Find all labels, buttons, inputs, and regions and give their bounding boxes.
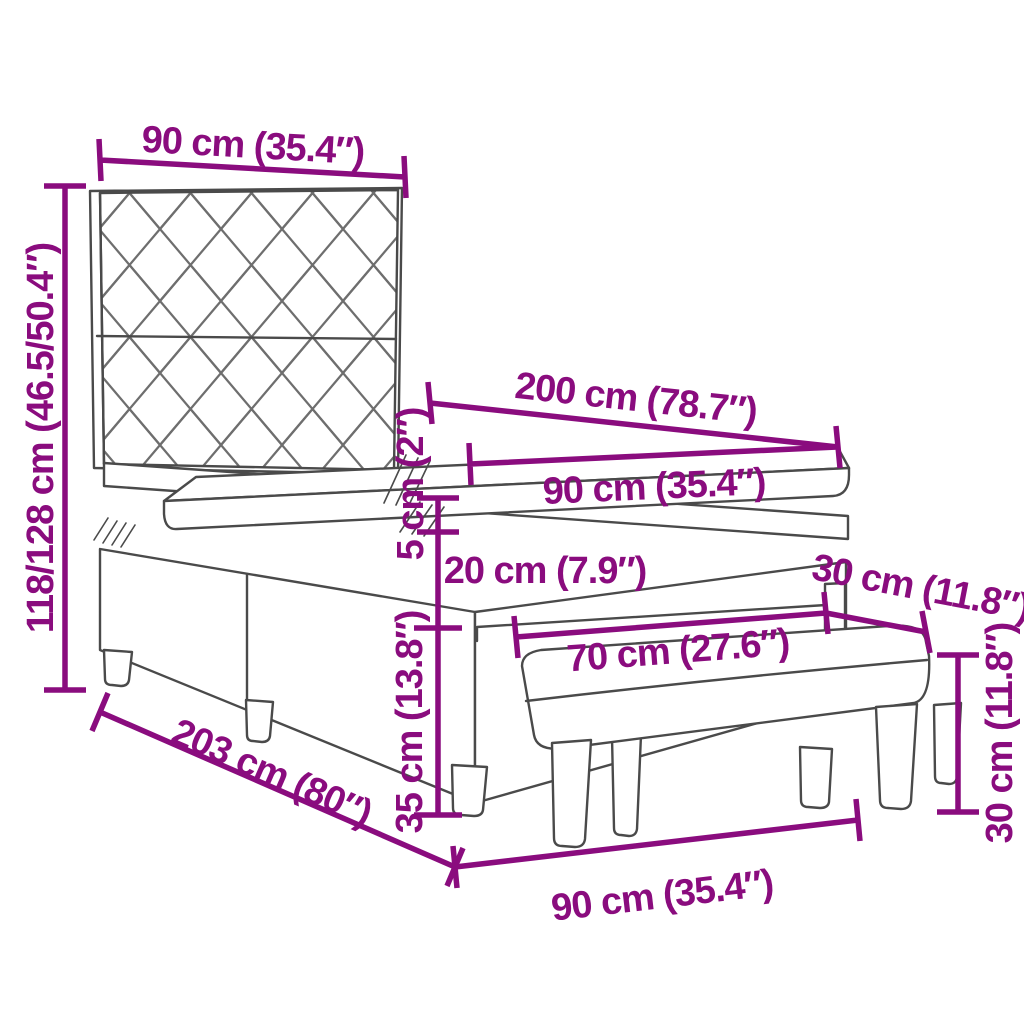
bed-leg-front-right <box>452 765 487 816</box>
headboard-pattern <box>100 190 398 470</box>
bench-leg-front-left <box>552 740 591 847</box>
dim-mattress-height-label: 5 cm (2″) <box>390 408 432 561</box>
dim-base-height-label: 35 cm (13.8″) <box>389 611 431 834</box>
bed-leg-foot <box>800 747 832 808</box>
bench-leg-front-right <box>876 704 917 809</box>
dim-box-spring-height-label: 20 cm (7.9″) <box>444 550 647 592</box>
bed-leg-front-left <box>104 650 132 686</box>
bed-dimension-diagram: 90 cm (35.4″) 118/128 cm (46.5/50.4″) 20… <box>0 0 1024 1024</box>
bed-leg-middle <box>246 700 273 742</box>
dim-bench-height-label: 30 cm (11.8″) <box>979 623 1021 844</box>
dim-overall-height-label: 118/128 cm (46.5/50.4″) <box>20 243 62 633</box>
diagram-canvas: 90 cm (35.4″) 118/128 cm (46.5/50.4″) 20… <box>0 0 1024 1024</box>
bench-leg-back-left <box>612 735 641 836</box>
